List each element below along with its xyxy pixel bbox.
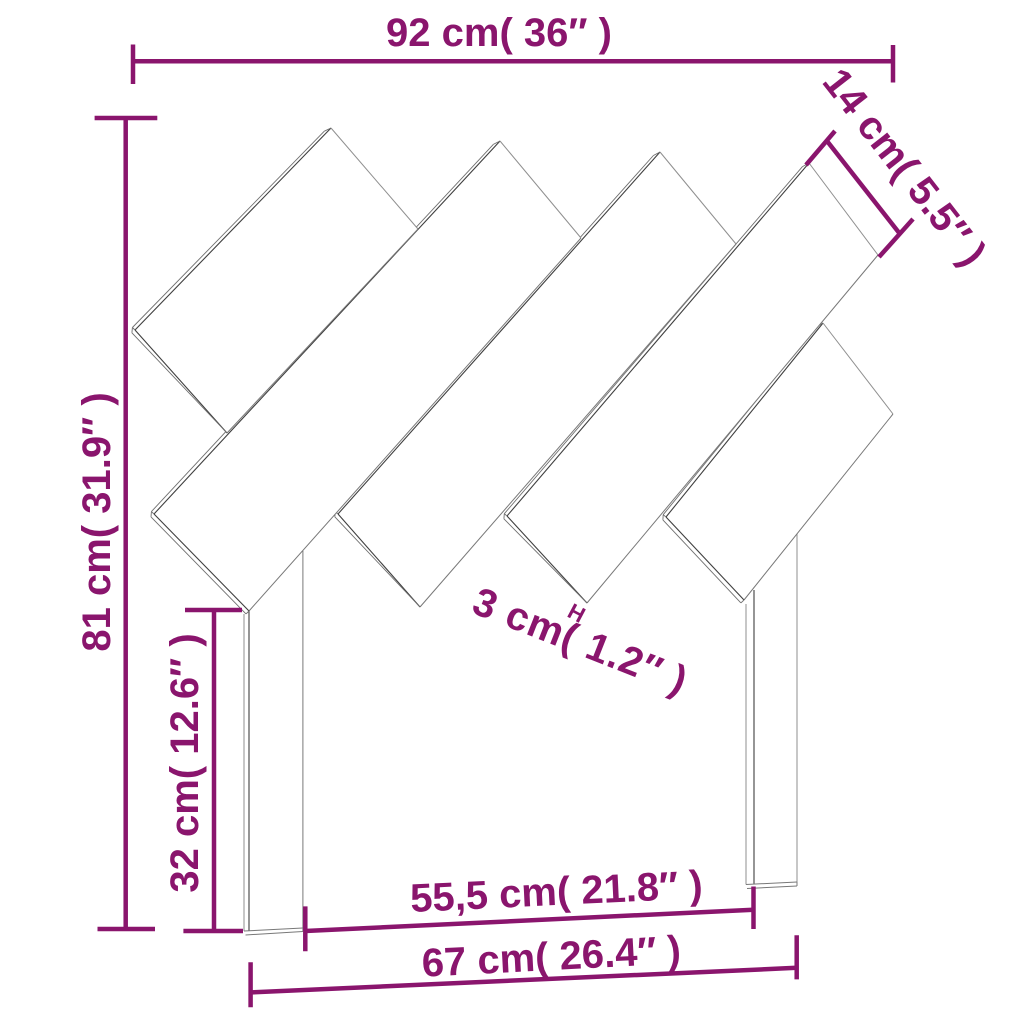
svg-text:32 cm( 12.6″ ): 32 cm( 12.6″ ) bbox=[163, 633, 207, 892]
svg-text:92 cm( 36″ ): 92 cm( 36″ ) bbox=[386, 11, 612, 55]
svg-text:81 cm( 31.9″ ): 81 cm( 31.9″ ) bbox=[75, 392, 119, 651]
